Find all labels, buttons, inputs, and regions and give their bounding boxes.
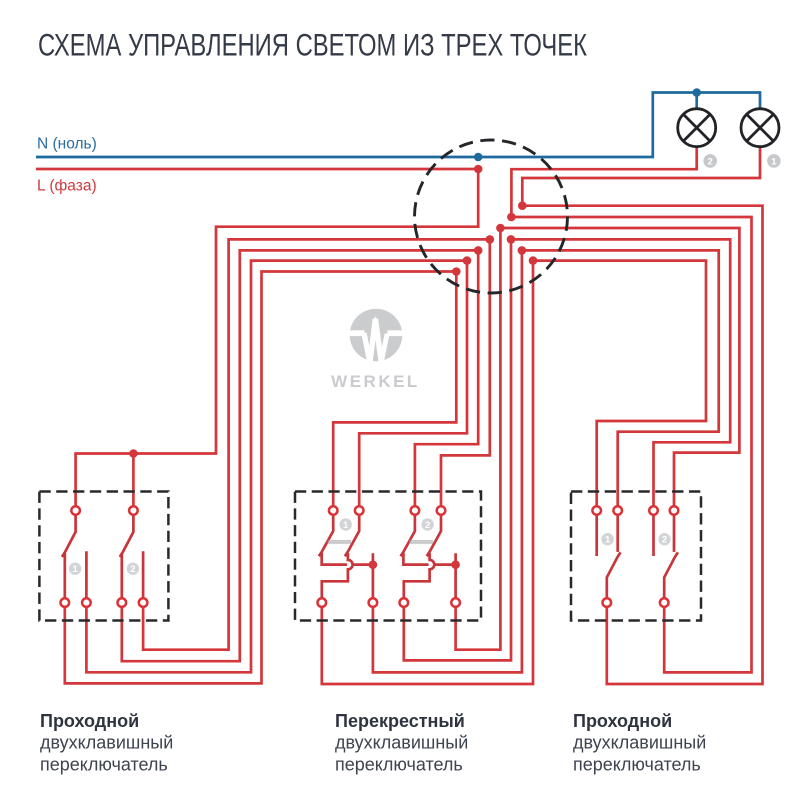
svg-text:2: 2 [708, 156, 713, 167]
svg-text:1: 1 [605, 535, 611, 546]
svg-text:L (фаза): L (фаза) [37, 178, 97, 195]
svg-text:СХЕМА УПРАВЛЕНИЯ СВЕТОМ ИЗ ТРЕ: СХЕМА УПРАВЛЕНИЯ СВЕТОМ ИЗ ТРЕХ ТОЧЕК [38, 28, 588, 63]
svg-text:Проходнойдвухклавишныйпереключ: Проходнойдвухклавишныйпереключатель [40, 711, 173, 774]
svg-text:WERKEL: WERKEL [331, 372, 420, 391]
svg-text:1: 1 [343, 520, 349, 531]
svg-text:Проходнойдвухклавишныйпереключ: Проходнойдвухклавишныйпереключатель [573, 711, 706, 774]
svg-text:2: 2 [130, 564, 135, 575]
svg-text:2: 2 [425, 520, 430, 531]
svg-text:1: 1 [771, 156, 777, 167]
svg-text:2: 2 [662, 535, 667, 546]
svg-text:1: 1 [72, 564, 78, 575]
svg-text:Перекрестныйдвухклавишныйперек: Перекрестныйдвухклавишныйпереключатель [335, 711, 468, 774]
svg-text:N (ноль): N (ноль) [37, 136, 97, 153]
